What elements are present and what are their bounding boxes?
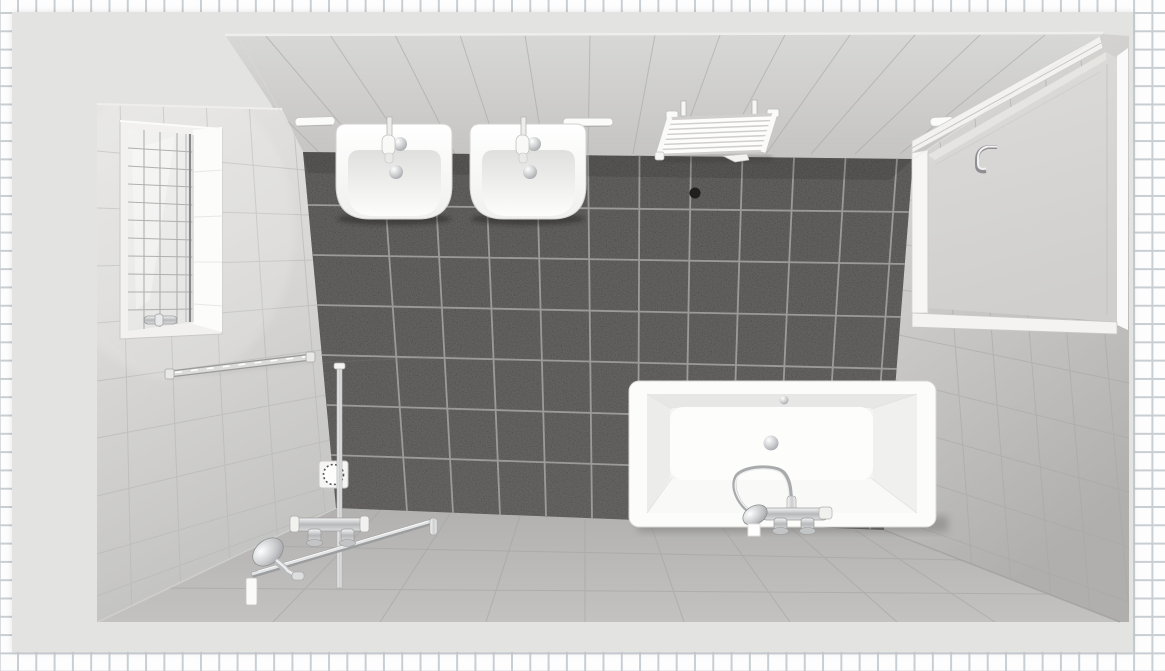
washbasin-right[interactable] xyxy=(470,117,586,225)
washbasin-left[interactable] xyxy=(336,117,452,225)
tub-overflow xyxy=(780,396,789,405)
planner-canvas xyxy=(0,0,1165,671)
wall-vent[interactable] xyxy=(690,188,701,199)
shower-rail-foot xyxy=(246,578,257,605)
door-edge xyxy=(1117,48,1128,330)
window-handle xyxy=(144,314,177,326)
bathtub[interactable] xyxy=(629,381,948,536)
basin-drain-cap xyxy=(523,165,537,179)
floor-drain[interactable] xyxy=(319,461,348,488)
door-jamb xyxy=(912,150,928,313)
window-reveal xyxy=(193,127,222,332)
room-render xyxy=(0,0,1165,671)
window[interactable] xyxy=(120,121,222,339)
basin-drain-cap xyxy=(389,165,403,179)
recessed-light-icon xyxy=(295,116,335,126)
tub-drain-cap xyxy=(764,436,779,451)
